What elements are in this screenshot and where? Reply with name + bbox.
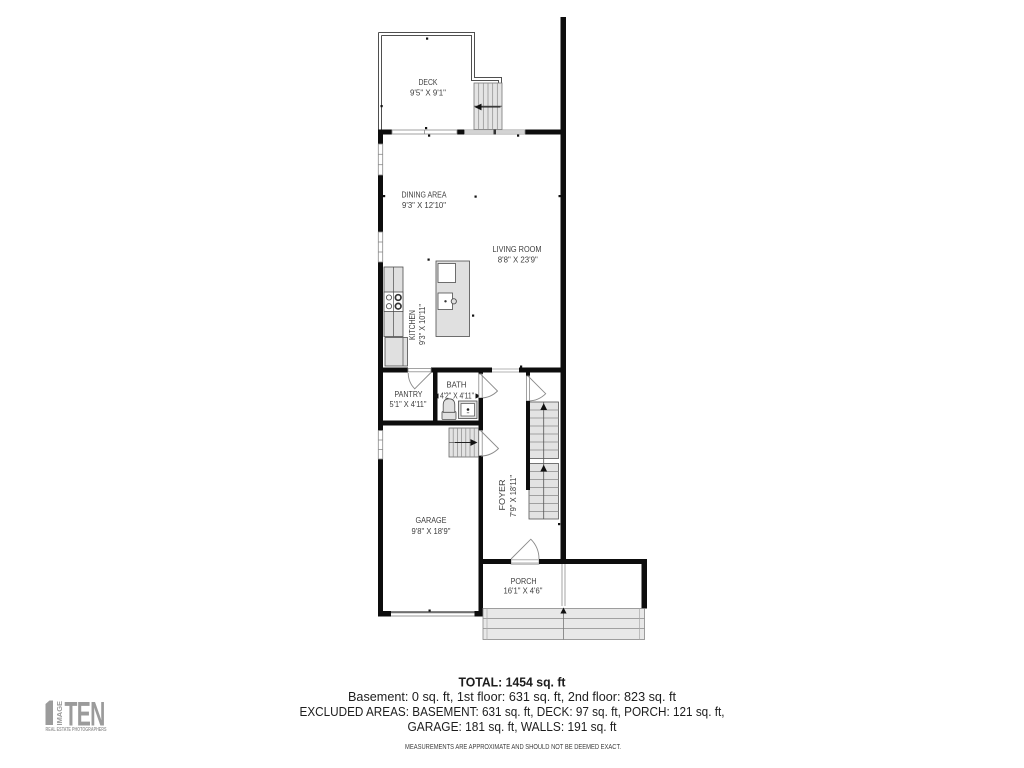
svg-text:EXCLUDED AREAS: BASEMENT: 631: EXCLUDED AREAS: BASEMENT: 631 sq. ft, DE…: [300, 704, 725, 719]
svg-text:DINING AREA: DINING AREA: [402, 190, 447, 200]
svg-text:9'8" X 18'9": 9'8" X 18'9": [412, 527, 451, 536]
svg-text:REAL ESTATE PHOTOGRAPHERS: REAL ESTATE PHOTOGRAPHERS: [46, 727, 107, 733]
svg-text:8'8" X 23'9": 8'8" X 23'9": [498, 255, 538, 264]
svg-text:MEASUREMENTS ARE APPROXIMATE A: MEASUREMENTS ARE APPROXIMATE AND SHOULD …: [405, 744, 621, 751]
svg-text:KITCHEN: KITCHEN: [407, 310, 417, 340]
svg-text:TOTAL: 1454 sq. ft: TOTAL: 1454 sq. ft: [459, 675, 567, 690]
svg-text:16'1" X 4'6": 16'1" X 4'6": [504, 587, 543, 596]
svg-text:9'3" X 10'11": 9'3" X 10'11": [418, 304, 427, 345]
svg-text:BATH: BATH: [447, 380, 467, 390]
svg-text:GARAGE: GARAGE: [416, 515, 447, 525]
svg-text:Basement: 0 sq. ft, 1st floor:: Basement: 0 sq. ft, 1st floor: 631 sq. f…: [348, 689, 676, 704]
svg-text:GARAGE: 181 sq. ft, WALLS: 191: GARAGE: 181 sq. ft, WALLS: 191 sq. ft: [408, 719, 617, 734]
svg-text:IMAGE: IMAGE: [55, 701, 64, 726]
svg-text:7'9" X 18'11": 7'9" X 18'11": [509, 475, 518, 517]
svg-text:PANTRY: PANTRY: [395, 389, 423, 399]
svg-text:LIVING ROOM: LIVING ROOM: [493, 244, 542, 254]
svg-text:DECK: DECK: [419, 77, 438, 87]
svg-text:FOYER: FOYER: [497, 480, 507, 511]
svg-text:9'5" X 9'1": 9'5" X 9'1": [410, 89, 446, 98]
svg-text:9'3" X 12'10": 9'3" X 12'10": [402, 201, 446, 210]
svg-text:5'1" X 4'11": 5'1" X 4'11": [390, 400, 427, 409]
svg-text:PORCH: PORCH: [511, 576, 537, 586]
svg-text:4'2" X 4'11": 4'2" X 4'11": [440, 392, 474, 401]
